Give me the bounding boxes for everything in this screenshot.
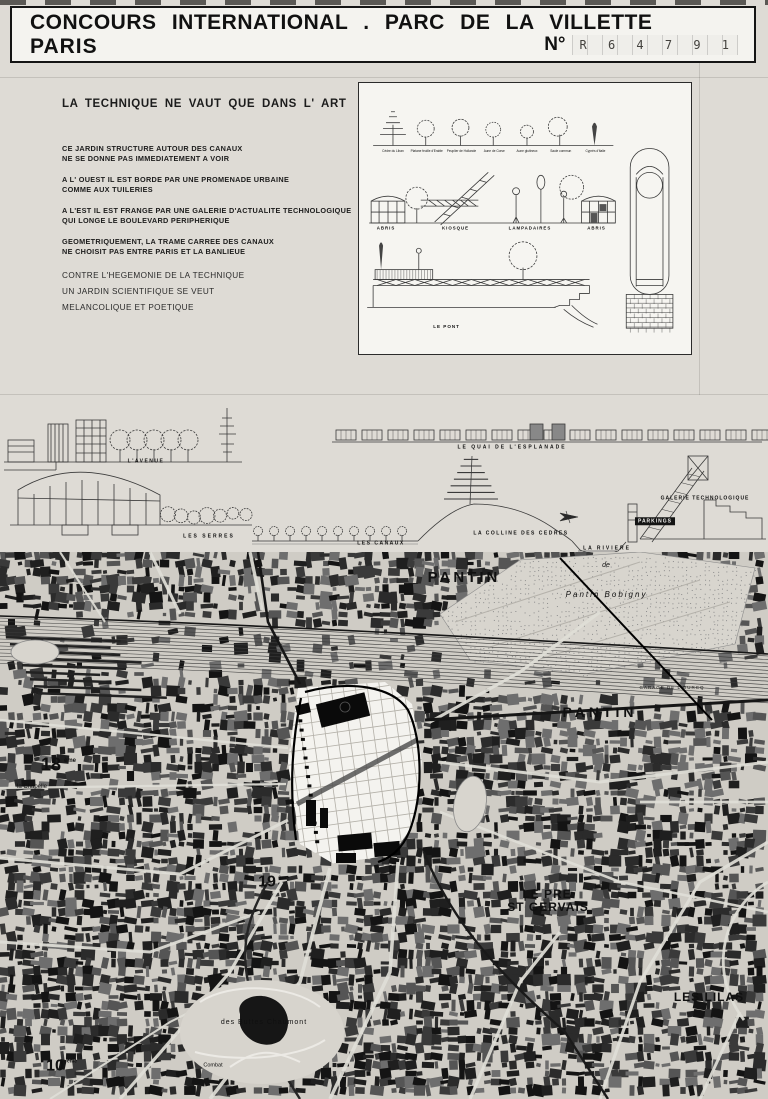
detail-drawings: Cèdre du LibanPlatane feuille d'ErablePe… — [359, 83, 691, 354]
sections-linework — [4, 408, 768, 555]
sections-labels: L'AVENUELE QUAI DE L'ESPLANADELES SERRES… — [128, 444, 750, 551]
fold-line — [699, 63, 700, 395]
drawing-label: ABRIS — [377, 226, 396, 231]
manifesto-closing-line: UN JARDIN SCIENTIFIQUE SE VEUT — [62, 284, 358, 300]
manifesto-paragraph: CE JARDIN STRUCTURE AUTOUR DES CANAUX NE… — [62, 144, 358, 163]
map-label: 18 — [41, 754, 61, 774]
detail-drawings-panel: Cèdre du LibanPlatane feuille d'ErablePe… — [358, 82, 692, 355]
airplane-icon — [560, 511, 578, 523]
manifesto-paragraph: A L' OUEST IL EST BORDE PAR UNE PROMENAD… — [62, 175, 358, 194]
drawing-label: Peuplier de Hollande — [447, 149, 477, 153]
cypress-tree-icon — [379, 242, 383, 269]
entry-number-prefix: N° — [544, 34, 565, 55]
map-label: ème — [278, 876, 289, 882]
map-label: PANTIN — [428, 569, 501, 586]
map-label: Bobigny — [605, 590, 648, 599]
cypress-tree-icon — [592, 123, 597, 146]
drawing-label: KIOSQUE — [442, 226, 469, 231]
manifesto-heading: LA TECHNIQUE NE VAUT QUE DANS L' ART — [62, 98, 358, 110]
map-label: 10 — [46, 1058, 64, 1075]
manifesto-closing-line: CONTRE L'HEGEMONIE DE LA TECHNIQUE — [62, 268, 358, 284]
drawing-label: Aune glutineux — [517, 149, 538, 153]
section-label: GALERIE TECHNOLOGIQUE — [661, 495, 750, 501]
map-label: des Buttes Chaumont — [221, 1019, 307, 1026]
drawing-label: Saule commun — [550, 149, 571, 153]
entry-number: N°R 6 4 7 9 1 — [544, 34, 738, 56]
drawing-label: LAMPADAIRES — [509, 226, 552, 231]
drawing-label: Platane feuille d'Erable — [411, 149, 443, 153]
manifesto-paragraph: GEOMETRIQUEMENT, LA TRAME CARREE DES CAN… — [62, 237, 358, 256]
drawing-label: LE PONT — [433, 324, 460, 329]
fold-line — [0, 77, 768, 78]
paris-map: PANTINdePantinBobignyGARAGE DE L'OURCQPA… — [0, 552, 768, 1099]
drawing-label: Cyprès d'Italie — [586, 149, 606, 153]
photo-edge-strip — [0, 0, 768, 5]
board-title: CONCOURS INTERNATIONAL . PARC DE LA VILL… — [30, 11, 652, 35]
map-label: GARAGE DE L'OURCQ — [639, 685, 704, 690]
map-label: la Chapelle — [17, 784, 48, 790]
section-label: L'AVENUE — [128, 458, 165, 464]
manifesto-closing: CONTRE L'HEGEMONIE DE LA TECHNIQUEUN JAR… — [62, 268, 358, 316]
panel-linework — [367, 112, 673, 333]
manifesto-closing-line: MELANCOLIQUE ET POETIQUE — [62, 300, 358, 316]
map-label: ST GERVAIS — [507, 900, 589, 914]
map-label: LES LILAS — [674, 990, 744, 1004]
city-map: PANTINdePantinBobignyGARAGE DE L'OURCQPA… — [0, 552, 768, 1099]
drawing-label: Cèdre du Liban — [382, 149, 404, 153]
map-label: 19 — [258, 874, 276, 891]
section-label: LA COLLINE DES CEDRES — [473, 530, 568, 536]
manifesto-paragraphs: CE JARDIN STRUCTURE AUTOUR DES CANAUX NE… — [62, 144, 358, 256]
section-label: PARKINGS — [638, 518, 672, 524]
manifesto-text: LA TECHNIQUE NE VAUT QUE DANS L' ART CE … — [62, 98, 358, 316]
section-label: LES SERRES — [183, 533, 235, 539]
section-drawings: L'AVENUELE QUAI DE L'ESPLANADELES SERRES… — [0, 400, 768, 555]
section-label: LE QUAI DE L'ESPLANADE — [457, 444, 566, 450]
section-label: LA RIVIERE — [583, 545, 631, 551]
title-block: CONCOURS INTERNATIONAL . PARC DE LA VILL… — [10, 6, 756, 63]
map-label: ème — [64, 758, 77, 764]
board-city: PARIS — [30, 35, 98, 59]
manifesto-paragraph: A L'EST IL EST FRANGE PAR UNE GALERIE D'… — [62, 206, 358, 225]
site-sections: L'AVENUELE QUAI DE L'ESPLANADELES SERRES… — [0, 400, 768, 555]
map-label: Pantin — [566, 590, 601, 599]
map-label: PANTIN — [562, 704, 637, 720]
map-label: de — [602, 562, 610, 569]
section-label: LES CANAUX — [357, 540, 405, 546]
entry-number-value: R 6 4 7 9 1 — [572, 35, 738, 55]
map-label: ème — [67, 1058, 77, 1064]
panel-labels: Cèdre du LibanPlatane feuille d'ErablePe… — [377, 149, 606, 329]
drawing-label: Aune de Corse — [484, 149, 505, 153]
map-label: LE PRE — [522, 887, 571, 901]
fold-line — [0, 394, 768, 395]
map-label: Combat — [203, 1063, 223, 1069]
drawing-label: ABRIS — [587, 226, 606, 231]
